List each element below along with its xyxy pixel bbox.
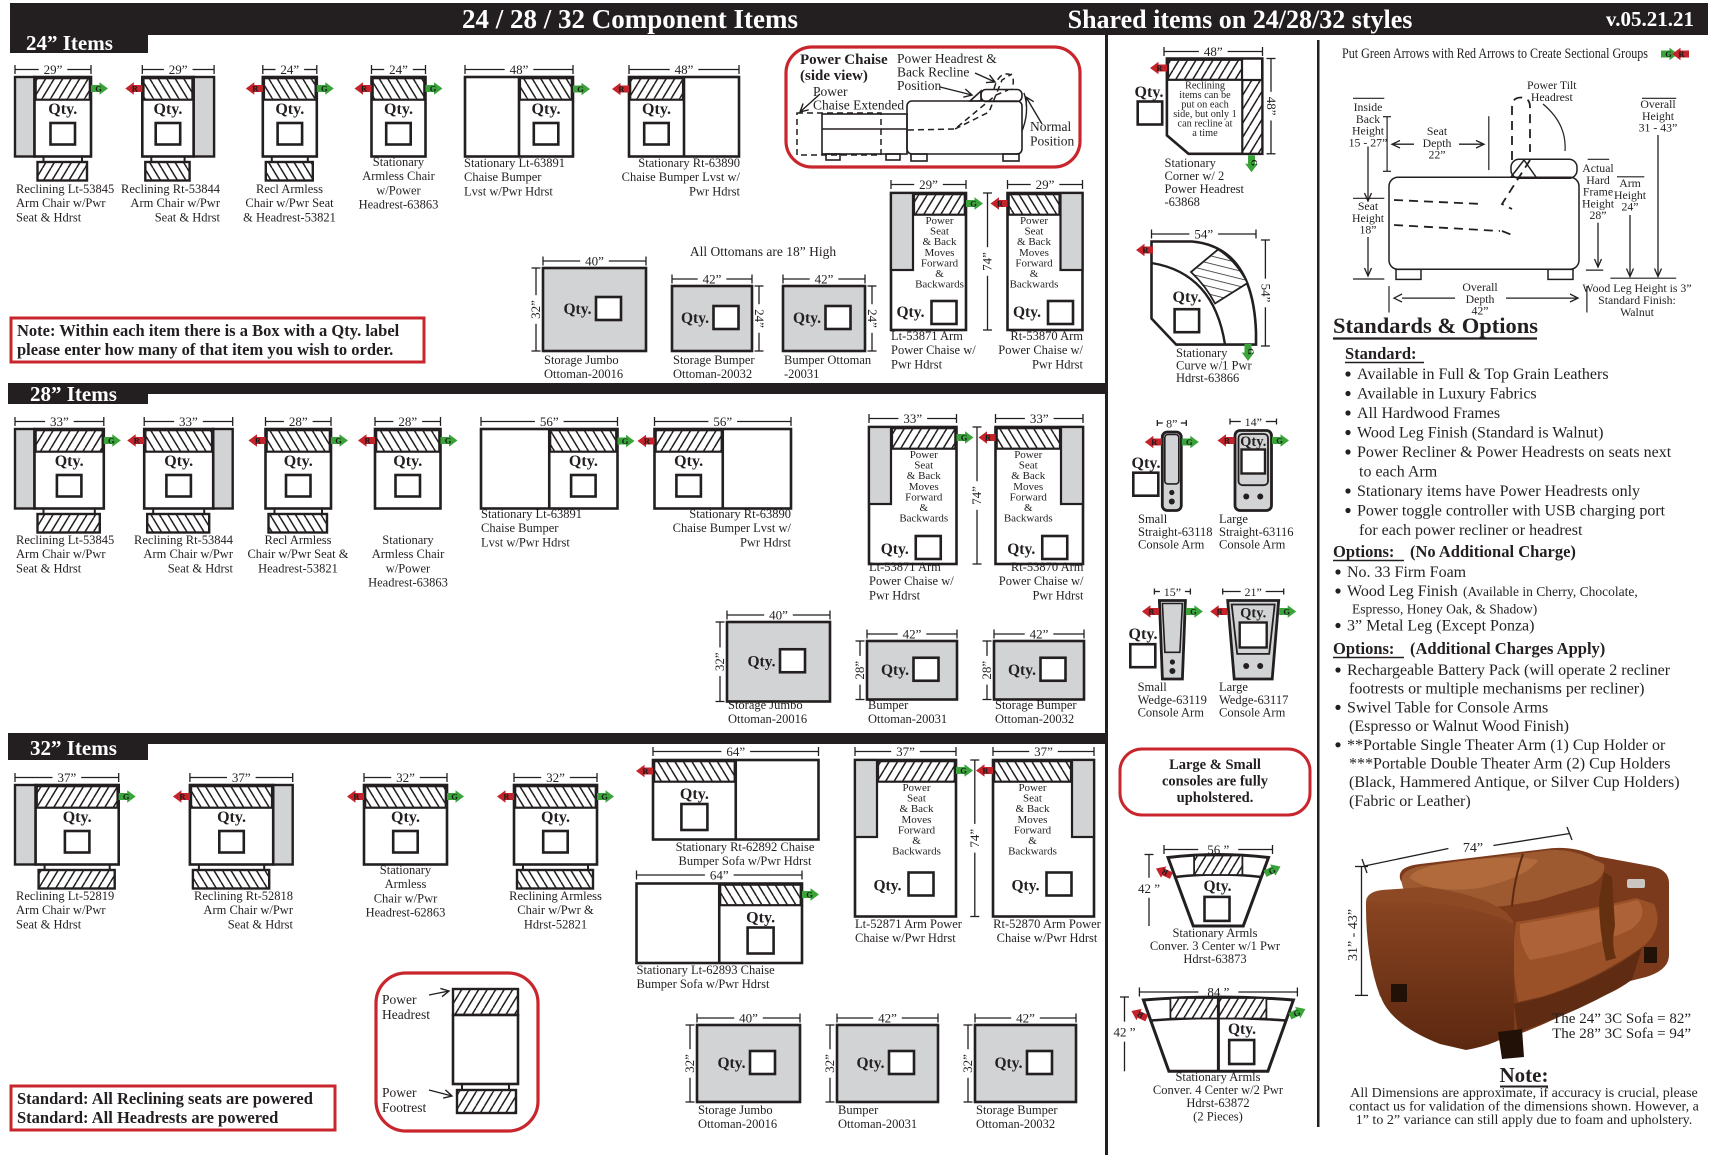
svg-text:Chair w/Pwr: Chair w/Pwr	[374, 891, 438, 905]
svg-text:Backwards: Backwards	[899, 513, 948, 525]
svg-text:Rt-53870 Arm: Rt-53870 Arm	[1010, 329, 1083, 343]
svg-text:Qty.: Qty.	[874, 878, 902, 895]
svg-text:Lt-53871 Arm: Lt-53871 Arm	[891, 329, 963, 343]
svg-text:Swivel Table for Console Arms: Swivel Table for Console Arms	[1347, 699, 1548, 716]
svg-text:R: R	[642, 766, 649, 776]
svg-text:40”: 40”	[739, 1011, 758, 1026]
svg-text:42”: 42”	[878, 1011, 897, 1026]
svg-text:Stationary Rt-63890: Stationary Rt-63890	[638, 156, 740, 170]
svg-text:Headrest-53821: Headrest-53821	[258, 561, 338, 575]
svg-text:R: R	[361, 84, 368, 94]
svg-text:Bumper Sofa w/Pwr Hdrst: Bumper Sofa w/Pwr Hdrst	[679, 854, 813, 868]
svg-text:The 24” 3C Sofa = 82”: The 24” 3C Sofa = 82”	[1552, 1011, 1691, 1027]
svg-text:G: G	[1246, 348, 1256, 355]
svg-text:R: R	[1142, 245, 1149, 255]
svg-text:Rt-52870 Arm Power: Rt-52870 Arm Power	[993, 917, 1101, 931]
svg-text:Seat & Hdrst: Seat & Hdrst	[155, 210, 221, 224]
svg-text:Ottoman-20032: Ottoman-20032	[976, 1117, 1055, 1131]
svg-text:42”: 42”	[1030, 627, 1049, 642]
svg-text:Chaise Bumper: Chaise Bumper	[464, 170, 542, 184]
svg-text:G: G	[1276, 436, 1283, 446]
svg-text:Standards & Options: Standards & Options	[1333, 313, 1538, 338]
svg-text:Qty.: Qty.	[642, 101, 671, 118]
svg-text:Console Arm: Console Arm	[1219, 706, 1286, 720]
svg-text:Note:: Note:	[1500, 1063, 1549, 1087]
svg-text:21”: 21”	[1245, 585, 1262, 599]
svg-text:Position: Position	[897, 78, 942, 93]
svg-text:74”: 74”	[980, 252, 995, 271]
svg-text:(Fabric or Leather): (Fabric or Leather)	[1349, 793, 1471, 810]
svg-text:Qty.: Qty.	[217, 809, 246, 826]
svg-text:74”: 74”	[1463, 841, 1483, 856]
svg-text:33”: 33”	[1030, 411, 1049, 426]
svg-text:R: R	[134, 436, 141, 446]
svg-text:(Black, Hammered Antique, or S: (Black, Hammered Antique, or Silver Cup …	[1349, 774, 1680, 791]
svg-text:48”: 48”	[510, 62, 529, 77]
svg-text:R: R	[1156, 63, 1163, 73]
svg-text:Reclining Rt-53844: Reclining Rt-53844	[134, 533, 234, 547]
svg-text:G: G	[430, 84, 437, 94]
svg-text:R: R	[1678, 49, 1685, 59]
svg-text:R: R	[179, 792, 186, 802]
svg-text:Seat & Hdrst: Seat & Hdrst	[16, 917, 82, 931]
svg-text:Stationary Lt-63891: Stationary Lt-63891	[464, 156, 565, 170]
svg-text:R: R	[644, 436, 651, 446]
svg-text:Bumper Sofa w/Pwr Hdrst: Bumper Sofa w/Pwr Hdrst	[637, 977, 771, 991]
svg-text:Qty.: Qty.	[718, 1055, 746, 1072]
svg-text:Power Chaise w/: Power Chaise w/	[891, 343, 976, 357]
svg-text:Storage Bumper: Storage Bumper	[976, 1103, 1058, 1117]
svg-text:Qty.: Qty.	[674, 453, 703, 470]
svg-text:74”: 74”	[969, 486, 984, 505]
svg-text:54”: 54”	[1258, 284, 1273, 303]
svg-text:33”: 33”	[903, 411, 922, 426]
svg-text:Arm Chair w/Pwr: Arm Chair w/Pwr	[143, 547, 233, 561]
svg-text:42”: 42”	[903, 627, 922, 642]
svg-text:29”: 29”	[919, 177, 938, 192]
svg-text:14”: 14”	[1245, 415, 1262, 429]
svg-text:G: G	[108, 436, 115, 446]
svg-text:R: R	[997, 199, 1004, 209]
svg-text:Available in Luxury Fabrics: Available in Luxury Fabrics	[1357, 386, 1537, 403]
svg-text:Ottoman-20032: Ottoman-20032	[995, 712, 1074, 726]
svg-text:Pwr Hdrst: Pwr Hdrst	[740, 535, 792, 549]
svg-text:Backwards: Backwards	[1004, 513, 1053, 525]
svg-text:Qty.: Qty.	[275, 101, 304, 118]
svg-text:Lvst w/Pwr Hdrst: Lvst w/Pwr Hdrst	[481, 535, 570, 549]
svg-text:Qty.: Qty.	[164, 453, 193, 470]
svg-text:Qty.: Qty.	[1240, 434, 1266, 450]
svg-text:Hdrst-52821: Hdrst-52821	[524, 917, 587, 931]
svg-text:Qty.: Qty.	[564, 301, 592, 318]
svg-text:consoles are fully: consoles are fully	[1162, 774, 1269, 790]
svg-text:Qty.: Qty.	[532, 101, 561, 118]
svg-text:24”: 24”	[1621, 200, 1638, 214]
svg-text:-63868: -63868	[1165, 195, 1200, 209]
svg-text:Power Chaise w/: Power Chaise w/	[999, 574, 1084, 588]
svg-text:Bumper: Bumper	[868, 698, 909, 712]
svg-text:Stationary items have Power He: Stationary items have Power Headrests on…	[1357, 483, 1640, 500]
svg-text:22”: 22”	[1428, 148, 1445, 162]
svg-text:R: R	[1217, 607, 1224, 617]
svg-text:Stationary: Stationary	[1165, 156, 1217, 170]
svg-text:32” Items: 32” Items	[30, 736, 117, 760]
svg-text:32”: 32”	[528, 300, 543, 319]
svg-text:a time: a time	[1192, 128, 1218, 139]
svg-text:R: R	[252, 84, 259, 94]
svg-text:Backwards: Backwards	[892, 846, 941, 858]
svg-text:Qty.: Qty.	[1013, 304, 1041, 321]
svg-text:Chair w/Pwr Seat: Chair w/Pwr Seat	[245, 196, 334, 210]
svg-text:Pwr Hdrst: Pwr Hdrst	[689, 184, 741, 198]
svg-text:Power Chaise: Power Chaise	[800, 52, 888, 68]
svg-text:for each power recliner or hea: for each power recliner or headrest	[1359, 522, 1583, 539]
svg-text:Reclining Rt-53844: Reclining Rt-53844	[121, 182, 221, 196]
svg-text:G: G	[1190, 607, 1197, 617]
svg-text:Qty.: Qty.	[63, 809, 92, 826]
svg-text:G: G	[961, 433, 968, 443]
svg-text:R: R	[353, 792, 360, 802]
svg-text:Available in Full & Top Grain: Available in Full & Top Grain Leathers	[1357, 366, 1609, 383]
svg-text:Wood Leg Finish (Standard is W: Wood Leg Finish (Standard is Walnut)	[1357, 425, 1603, 442]
svg-text:Qty.: Qty.	[748, 653, 776, 670]
svg-text:***Portable Double Theater Arm: ***Portable Double Theater Arm (2) Cup H…	[1349, 756, 1670, 773]
svg-text:Qty.: Qty.	[154, 101, 183, 118]
svg-text:54”: 54”	[1194, 227, 1213, 242]
svg-text:R: R	[132, 84, 139, 94]
svg-text:Options:: Options:	[1333, 542, 1394, 561]
svg-text:Large & Small: Large & Small	[1169, 757, 1261, 773]
svg-text:Headrest-62863: Headrest-62863	[366, 906, 446, 920]
svg-text:Backwards: Backwards	[915, 279, 964, 291]
svg-text:Qty.: Qty.	[1129, 626, 1158, 643]
svg-text:Espresso, Honey Oak, & Shadow): Espresso, Honey Oak, & Shadow)	[1352, 602, 1537, 617]
svg-text:Reclining Armless: Reclining Armless	[509, 889, 602, 903]
svg-text:Ottoman-20031: Ottoman-20031	[838, 1117, 917, 1131]
svg-text:R: R	[1151, 437, 1158, 447]
svg-text:& Headrest-53821: & Headrest-53821	[243, 210, 336, 224]
svg-text:G: G	[622, 436, 629, 446]
svg-text:Seat & Hdrst: Seat & Hdrst	[228, 917, 294, 931]
svg-text:R: R	[1148, 607, 1155, 617]
svg-text:32”: 32”	[682, 1054, 697, 1073]
svg-text:3” Metal Leg (Except Ponza): 3” Metal Leg (Except Ponza)	[1347, 618, 1534, 635]
svg-text:Ottoman-20016: Ottoman-20016	[544, 367, 623, 381]
svg-text:Qty.: Qty.	[541, 809, 570, 826]
svg-text:Arm Chair w/Pwr: Arm Chair w/Pwr	[16, 903, 106, 917]
svg-text:Conver. 4 Center w/2 Pwr: Conver. 4 Center w/2 Pwr	[1153, 1083, 1284, 1097]
svg-text:G: G	[445, 436, 452, 446]
svg-text:Power Headrest: Power Headrest	[1165, 182, 1245, 196]
svg-text:G: G	[1283, 607, 1290, 617]
svg-text:Stationary Lt-62893 Chaise: Stationary Lt-62893 Chaise	[637, 963, 776, 977]
svg-text:24”: 24”	[752, 309, 767, 328]
svg-text:37”: 37”	[57, 770, 76, 785]
svg-text:Qty.: Qty.	[857, 1055, 885, 1072]
svg-text:Power Chaise w/: Power Chaise w/	[998, 343, 1083, 357]
svg-text:Options:: Options:	[1333, 639, 1394, 658]
svg-text:Seat & Hdrst: Seat & Hdrst	[168, 561, 234, 575]
svg-text:(Espresso or Walnut Wood Finis: (Espresso or Walnut Wood Finish)	[1349, 718, 1569, 735]
svg-text:28”: 28”	[979, 661, 994, 680]
svg-text:64”: 64”	[710, 868, 729, 883]
svg-text:Chair w/Pwr &: Chair w/Pwr &	[517, 903, 594, 917]
svg-text:Storage Jumbo: Storage Jumbo	[544, 353, 619, 367]
svg-text:Pwr Hdrst: Pwr Hdrst	[1032, 357, 1084, 371]
svg-text:31 - 43”: 31 - 43”	[1639, 121, 1678, 135]
svg-text:8”: 8”	[1166, 417, 1177, 431]
svg-text:28”: 28”	[852, 661, 867, 680]
svg-text:Pwr Hdrst: Pwr Hdrst	[869, 588, 921, 602]
svg-text:37”: 37”	[1034, 744, 1053, 759]
svg-text:Arm Chair w/Pwr: Arm Chair w/Pwr	[16, 547, 106, 561]
svg-text:Qty.: Qty.	[48, 101, 77, 118]
svg-text:Chaise w/Pwr Hdrst: Chaise w/Pwr Hdrst	[855, 931, 956, 945]
svg-text:Qty.: Qty.	[393, 453, 422, 470]
svg-text:G: G	[806, 890, 813, 900]
svg-text:Armless: Armless	[385, 877, 427, 891]
svg-text:Qty.: Qty.	[793, 310, 821, 327]
svg-text:Chaise Extended: Chaise Extended	[813, 98, 904, 113]
svg-text:(Additional Charges Apply): (Additional Charges Apply)	[1410, 639, 1605, 658]
svg-text:48”: 48”	[1264, 97, 1279, 116]
svg-text:Stationary: Stationary	[382, 533, 434, 547]
svg-text:Headrest: Headrest	[382, 1007, 430, 1022]
svg-text:Shared items on 24/28/32 style: Shared items on 24/28/32 styles	[1068, 5, 1413, 34]
svg-text:R: R	[618, 84, 625, 94]
svg-text:G: G	[95, 84, 102, 94]
svg-text:Standard: All Headrests are po: Standard: All Headrests are powered	[17, 1108, 278, 1127]
svg-text:G: G	[335, 436, 342, 446]
svg-text:Pwr Hdrst: Pwr Hdrst	[891, 357, 943, 371]
svg-text:Qty.: Qty.	[681, 310, 709, 327]
svg-text:R: R	[1224, 436, 1231, 446]
svg-text:G: G	[1186, 437, 1193, 447]
svg-text:Headrest-63863: Headrest-63863	[359, 198, 439, 212]
svg-text:Qty.: Qty.	[1173, 289, 1202, 306]
svg-text:to each Arm: to each Arm	[1359, 464, 1438, 481]
svg-text:Stationary Rt-62892 Chaise: Stationary Rt-62892 Chaise	[676, 840, 815, 854]
svg-text:Backwards: Backwards	[1008, 846, 1057, 858]
svg-text:Storage Jumbo: Storage Jumbo	[728, 698, 803, 712]
svg-text:Qty.: Qty.	[1008, 662, 1036, 679]
svg-text:Seat & Hdrst: Seat & Hdrst	[16, 210, 82, 224]
svg-text:37”: 37”	[232, 770, 251, 785]
svg-text:Power Recliner & Power Headres: Power Recliner & Power Headrests on seat…	[1357, 444, 1672, 461]
svg-text:Stationary Lt-63891: Stationary Lt-63891	[481, 507, 582, 521]
svg-text:Ottoman-20016: Ottoman-20016	[698, 1117, 777, 1131]
svg-text:40”: 40”	[585, 254, 604, 269]
svg-text:Put Green Arrows with Red Arro: Put Green Arrows with Red Arrows to Crea…	[1342, 46, 1648, 62]
svg-text:Hdrst-63872: Hdrst-63872	[1186, 1096, 1249, 1110]
svg-text:28”: 28”	[398, 414, 417, 429]
svg-text:G: G	[601, 792, 608, 802]
svg-text:32”: 32”	[396, 770, 415, 785]
svg-text:-20031: -20031	[784, 367, 819, 381]
svg-text:56”: 56”	[540, 414, 559, 429]
svg-text:All Hardwood Frames: All Hardwood Frames	[1357, 405, 1500, 422]
svg-text:Qty.: Qty.	[1240, 606, 1266, 622]
svg-text:33”: 33”	[179, 414, 198, 429]
svg-text:29”: 29”	[169, 62, 188, 77]
svg-text:Ottoman-20031: Ottoman-20031	[868, 712, 947, 726]
svg-text:G: G	[960, 766, 967, 776]
svg-text:Seat & Hdrst: Seat & Hdrst	[16, 561, 82, 575]
svg-text:Wood Leg Finish: Wood Leg Finish	[1347, 583, 1458, 600]
svg-text:Reclining Rt-52818: Reclining Rt-52818	[194, 889, 293, 903]
svg-text:Lt-52871 Arm Power: Lt-52871 Arm Power	[855, 917, 963, 931]
svg-text:Console Arm: Console Arm	[1138, 538, 1205, 552]
svg-text:Arm Chair w/Pwr: Arm Chair w/Pwr	[16, 196, 106, 210]
svg-text:Qty.: Qty.	[391, 809, 420, 826]
svg-text:Qty.: Qty.	[1204, 878, 1232, 895]
svg-text:40”: 40”	[769, 608, 788, 623]
svg-text:Headrest-63863: Headrest-63863	[368, 576, 448, 590]
svg-text:footrests or multiple mechanis: footrests or multiple mechanisms per rec…	[1349, 681, 1644, 698]
svg-text:24 / 28 / 32 Component Items: 24 / 28 / 32 Component Items	[462, 4, 798, 34]
svg-text:Pwr Hdrst: Pwr Hdrst	[1032, 588, 1084, 602]
svg-text:Note: Within each item there i: Note: Within each item there is a Box wi…	[17, 321, 400, 340]
svg-text:56”: 56”	[713, 414, 732, 429]
svg-text:G: G	[123, 792, 130, 802]
svg-text:Recl Armless: Recl Armless	[256, 182, 323, 196]
svg-text:Chaise Bumper Lvst w/: Chaise Bumper Lvst w/	[673, 521, 792, 535]
svg-text:Qty.: Qty.	[569, 453, 598, 470]
svg-text:Ottoman-20016: Ottoman-20016	[728, 712, 807, 726]
svg-text:Power: Power	[382, 1085, 417, 1100]
svg-text:Hdrst-63873: Hdrst-63873	[1183, 952, 1246, 966]
svg-text:29”: 29”	[1036, 177, 1055, 192]
svg-text:Qty.: Qty.	[384, 101, 413, 118]
svg-text:(Available in Cherry, Chocolat: (Available in Cherry, Chocolate,	[1463, 584, 1638, 599]
svg-text:32”: 32”	[822, 1054, 837, 1073]
svg-text:Qty.: Qty.	[897, 304, 925, 321]
svg-text:Qty.: Qty.	[1228, 1021, 1256, 1038]
svg-text:Recl Armless: Recl Armless	[264, 533, 331, 547]
svg-text:42”: 42”	[1016, 1011, 1035, 1026]
svg-text:Console Arm: Console Arm	[1138, 706, 1205, 720]
svg-text:33”: 33”	[50, 414, 69, 429]
svg-text:Qty.: Qty.	[1132, 455, 1161, 472]
svg-text:Qty.: Qty.	[746, 910, 775, 927]
svg-text:R: R	[503, 792, 510, 802]
svg-text:Armless Chair: Armless Chair	[372, 547, 445, 561]
svg-text:Storage Jumbo: Storage Jumbo	[698, 1103, 773, 1117]
svg-text:Arm Chair w/Pwr: Arm Chair w/Pwr	[130, 196, 220, 210]
svg-text:please enter how many of that: please enter how many of that item you w…	[17, 340, 393, 359]
svg-text:Qty.: Qty.	[995, 1055, 1023, 1072]
svg-text:G: G	[321, 84, 328, 94]
svg-text:upholstered.: upholstered.	[1177, 790, 1254, 806]
svg-text:R: R	[982, 766, 989, 776]
svg-text:Stationary: Stationary	[373, 155, 425, 169]
svg-text:Reclining Lt-53845: Reclining Lt-53845	[16, 182, 114, 196]
svg-text:Normal: Normal	[1030, 119, 1071, 134]
svg-text:Reclining Lt-52819: Reclining Lt-52819	[16, 889, 114, 903]
svg-text:Arm Chair w/Pwr: Arm Chair w/Pwr	[203, 903, 293, 917]
svg-text:v.05.21.21: v.05.21.21	[1606, 7, 1694, 31]
svg-text:Power: Power	[382, 992, 417, 1007]
svg-text:42 ”: 42 ”	[1113, 1025, 1135, 1040]
svg-text:32”: 32”	[546, 770, 565, 785]
svg-text:24”: 24”	[280, 62, 299, 77]
svg-text:74”: 74”	[967, 829, 982, 848]
svg-text:w/Power: w/Power	[386, 561, 431, 575]
svg-text:Qty.: Qty.	[1012, 878, 1040, 895]
svg-text:Qty.: Qty.	[284, 453, 313, 470]
svg-text:G: G	[1250, 159, 1260, 166]
svg-text:(2 Pieces): (2 Pieces)	[1193, 1109, 1243, 1123]
svg-text:Qty.: Qty.	[1135, 84, 1164, 101]
svg-text:Stationary Rt-63890: Stationary Rt-63890	[689, 507, 791, 521]
svg-text:32”: 32”	[712, 652, 727, 671]
svg-text:Standard: All Reclining seats: Standard: All Reclining seats are powere…	[17, 1089, 313, 1108]
svg-text:Qty.: Qty.	[1007, 541, 1035, 558]
svg-text:Stationary Armls: Stationary Armls	[1175, 1070, 1260, 1084]
svg-text:Hdrst-63866: Hdrst-63866	[1176, 371, 1239, 385]
svg-text:No. 33 Firm Foam: No. 33 Firm Foam	[1347, 564, 1467, 581]
svg-text:Storage Bumper: Storage Bumper	[673, 353, 755, 367]
svg-text:48”: 48”	[1204, 44, 1223, 59]
svg-text:G: G	[1665, 49, 1672, 59]
svg-text:All Ottomans are 18” High: All Ottomans are 18” High	[690, 244, 836, 259]
svg-text:28” Items: 28” Items	[30, 382, 117, 406]
svg-text:Conver. 3 Center w/1 Pwr: Conver. 3 Center w/1 Pwr	[1150, 939, 1281, 953]
svg-text:Qty.: Qty.	[881, 662, 909, 679]
svg-text:Chaise Bumper: Chaise Bumper	[481, 521, 559, 535]
svg-text:Stationary Armls: Stationary Armls	[1172, 926, 1257, 940]
svg-text:Chaise w/Pwr Hdrst: Chaise w/Pwr Hdrst	[997, 931, 1098, 945]
svg-text:**Portable Single Theater Arm: **Portable Single Theater Arm (1) Cup Ho…	[1347, 737, 1666, 754]
svg-text:28”: 28”	[1589, 208, 1606, 222]
svg-text:Bumper Ottoman: Bumper Ottoman	[784, 353, 872, 367]
svg-text:Rechargeable Battery Pack (wil: Rechargeable Battery Pack (will operate …	[1347, 662, 1671, 679]
svg-text:15”: 15”	[1164, 585, 1181, 599]
svg-text:Stationary: Stationary	[380, 863, 432, 877]
svg-text:Console Arm: Console Arm	[1219, 538, 1286, 552]
svg-text:Qty.: Qty.	[680, 786, 709, 803]
svg-text:Chair w/Pwr Seat &: Chair w/Pwr Seat &	[247, 547, 348, 561]
svg-text:Corner w/ 2: Corner w/ 2	[1165, 169, 1225, 183]
svg-text:R: R	[255, 436, 262, 446]
svg-text:Storage Bumper: Storage Bumper	[995, 698, 1077, 712]
svg-text:Ottoman-20032: Ottoman-20032	[673, 367, 752, 381]
svg-text:32”: 32”	[960, 1054, 975, 1073]
svg-text:Bumper: Bumper	[838, 1103, 879, 1117]
svg-text:Headrest: Headrest	[1531, 90, 1574, 104]
svg-text:Rt-53870 Arm: Rt-53870 Arm	[1011, 560, 1084, 574]
svg-text:Backwards: Backwards	[1010, 279, 1059, 291]
svg-text:w/Power: w/Power	[376, 183, 421, 197]
svg-text:R: R	[985, 433, 992, 443]
svg-text:Walnut: Walnut	[1620, 305, 1655, 319]
svg-text:1” to 2” variance can still ap: 1” to 2” variance can still apply due to…	[1356, 1113, 1693, 1128]
svg-text:28”: 28”	[289, 414, 308, 429]
svg-text:18”: 18”	[1359, 223, 1376, 237]
svg-text:Power toggle controller with U: Power toggle controller with USB chargin…	[1357, 503, 1666, 520]
svg-text:48”: 48”	[675, 62, 694, 77]
svg-text:31” - 43”: 31” - 43”	[1346, 909, 1361, 961]
svg-text:Standard:: Standard:	[1345, 344, 1417, 363]
svg-text:Armless Chair: Armless Chair	[362, 169, 435, 183]
svg-text:Position: Position	[1030, 134, 1075, 149]
svg-text:Reclining Lt-53845: Reclining Lt-53845	[16, 533, 114, 547]
svg-text:Chaise Bumper Lvst w/: Chaise Bumper Lvst w/	[622, 170, 741, 184]
svg-text:Power Chaise w/: Power Chaise w/	[869, 574, 954, 588]
svg-text:29”: 29”	[44, 62, 63, 77]
svg-text:24” Items: 24” Items	[26, 31, 113, 55]
svg-text:42”: 42”	[815, 272, 834, 287]
